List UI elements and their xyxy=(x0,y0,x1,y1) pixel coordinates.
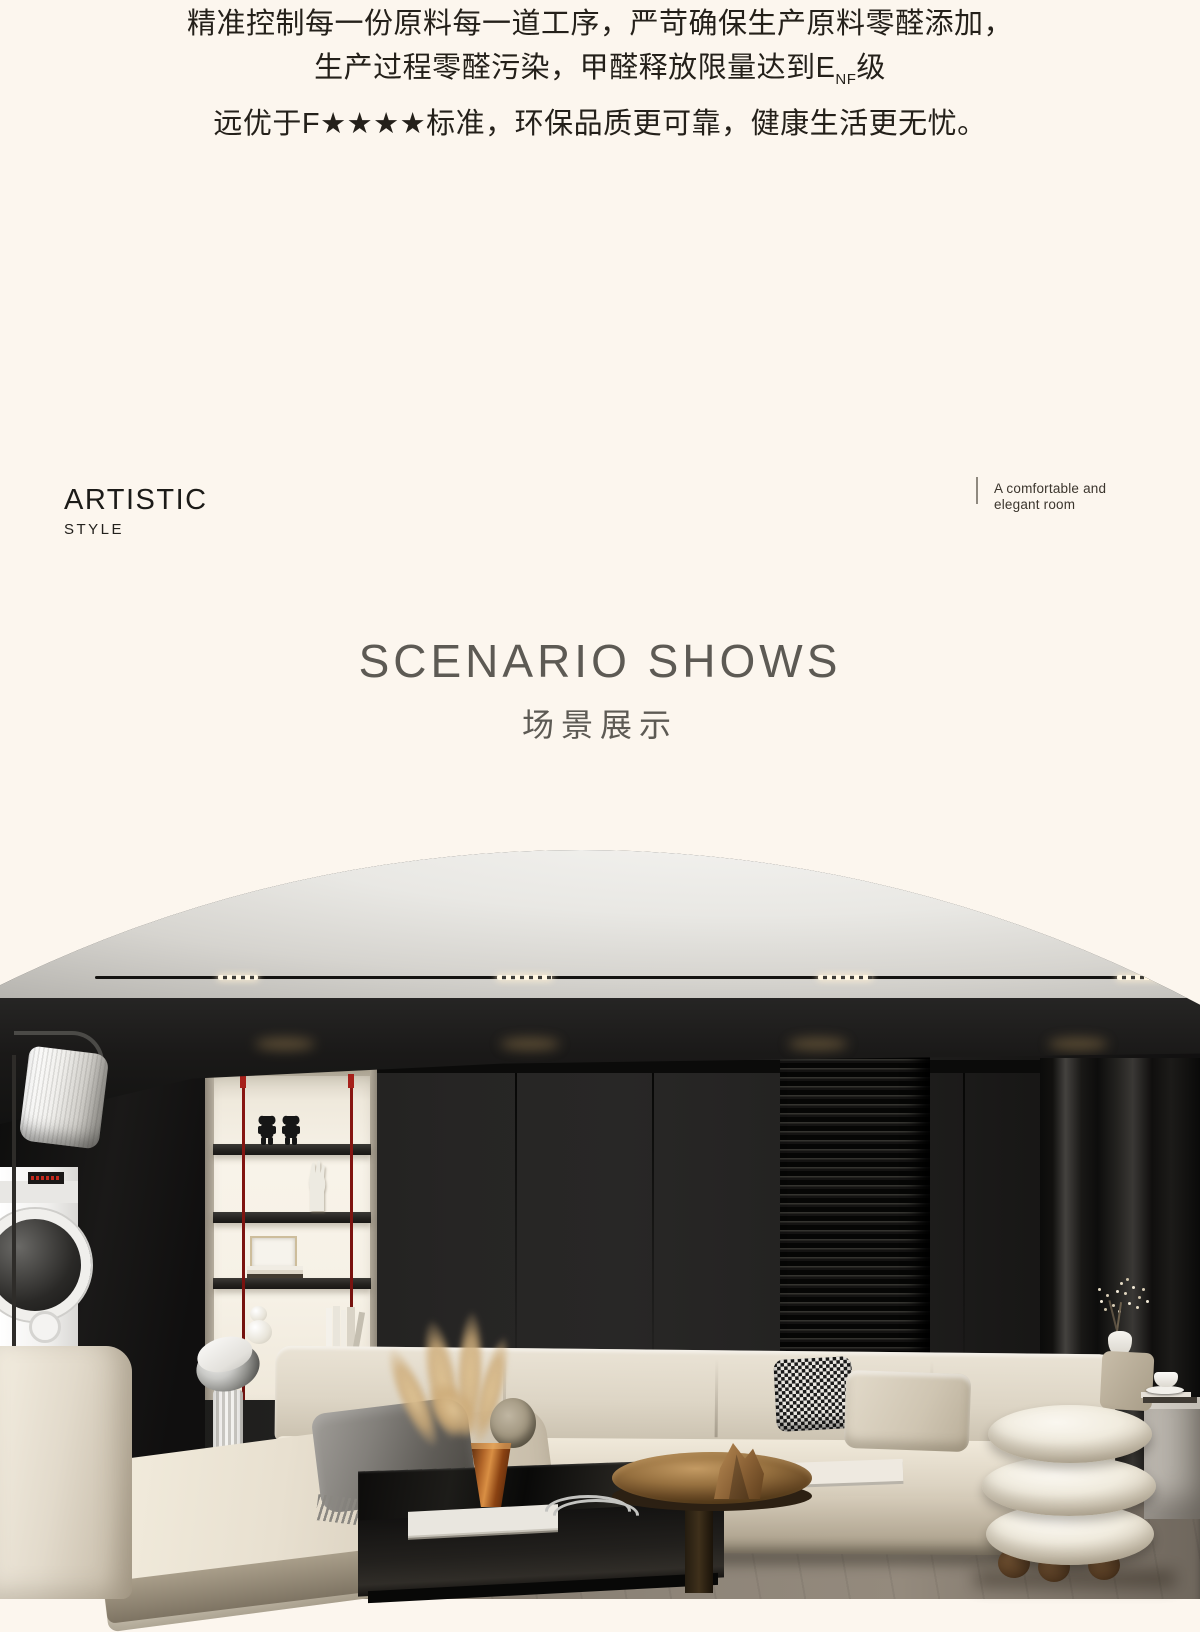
saucer xyxy=(1146,1386,1184,1394)
niche-shelf xyxy=(213,1278,371,1289)
side-note-divider xyxy=(976,477,978,504)
track-light-segment xyxy=(818,975,872,980)
living-room-scene-image xyxy=(0,845,1200,1599)
washer-filter-cap xyxy=(29,1311,61,1343)
intro-line-2: 生产过程零醛污染，甲醛释放限量达到ENF级 xyxy=(0,46,1200,102)
artistic-title: ARTISTIC xyxy=(64,484,208,517)
washer-display xyxy=(28,1172,64,1184)
pillow-houndstooth xyxy=(773,1356,855,1432)
downlight-glow xyxy=(1048,1038,1108,1050)
section-title-en: SCENARIO SHOWS xyxy=(0,634,1200,688)
niche-shelf xyxy=(213,1212,371,1223)
pillow-beige xyxy=(844,1370,972,1452)
slat-panel xyxy=(780,1045,930,1357)
side-table-book xyxy=(1143,1397,1197,1403)
sofa-armrest-left xyxy=(0,1346,132,1599)
track-light-segment xyxy=(497,975,552,980)
intro-copy: 精准控制每一份原料每一道工序，严苛确保生产原料零醛添加， 生产过程零醛污染，甲醛… xyxy=(0,2,1200,146)
pouf-ring-middle xyxy=(982,1456,1156,1516)
red-cord-clamp xyxy=(348,1074,354,1088)
track-light-segment xyxy=(1117,975,1183,980)
floor-lamp-pole xyxy=(12,1055,16,1360)
track-light-segment xyxy=(218,975,258,980)
side-table-body xyxy=(1144,1409,1200,1519)
silver-decor-object xyxy=(545,1495,631,1525)
pouf-ring-top xyxy=(988,1405,1152,1463)
hand-sculpture xyxy=(303,1158,329,1212)
bronze-table-top xyxy=(612,1452,812,1504)
artistic-subtitle: STYLE xyxy=(64,521,208,538)
bearbrick-figurines xyxy=(255,1112,301,1146)
artistic-style-block: ARTISTIC STYLE xyxy=(64,484,208,538)
gypsophila-flowers xyxy=(1088,1280,1152,1338)
track-light xyxy=(95,976,1185,979)
downlight-glow xyxy=(788,1038,848,1050)
downlight-glow xyxy=(255,1038,315,1050)
downlight-glow xyxy=(500,1038,560,1050)
side-note: A comfortable and elegant room xyxy=(994,481,1106,513)
sphere-lamp xyxy=(245,1312,273,1344)
photo-frame xyxy=(250,1236,297,1270)
floor-lamp-shade xyxy=(19,1045,110,1149)
intro-line-3: 远优于F★★★★标准，环保品质更可靠，健康生活更无忧。 xyxy=(0,102,1200,146)
intro-line-1: 精准控制每一份原料每一道工序，严苛确保生产原料零醛添加， xyxy=(0,2,1200,46)
dried-hydrangea xyxy=(490,1398,536,1448)
cushion-seam xyxy=(715,1358,719,1437)
section-title-zh: 场景展示 xyxy=(0,700,1200,746)
book-row xyxy=(326,1304,370,1348)
enf-subscript: NF xyxy=(835,71,856,88)
